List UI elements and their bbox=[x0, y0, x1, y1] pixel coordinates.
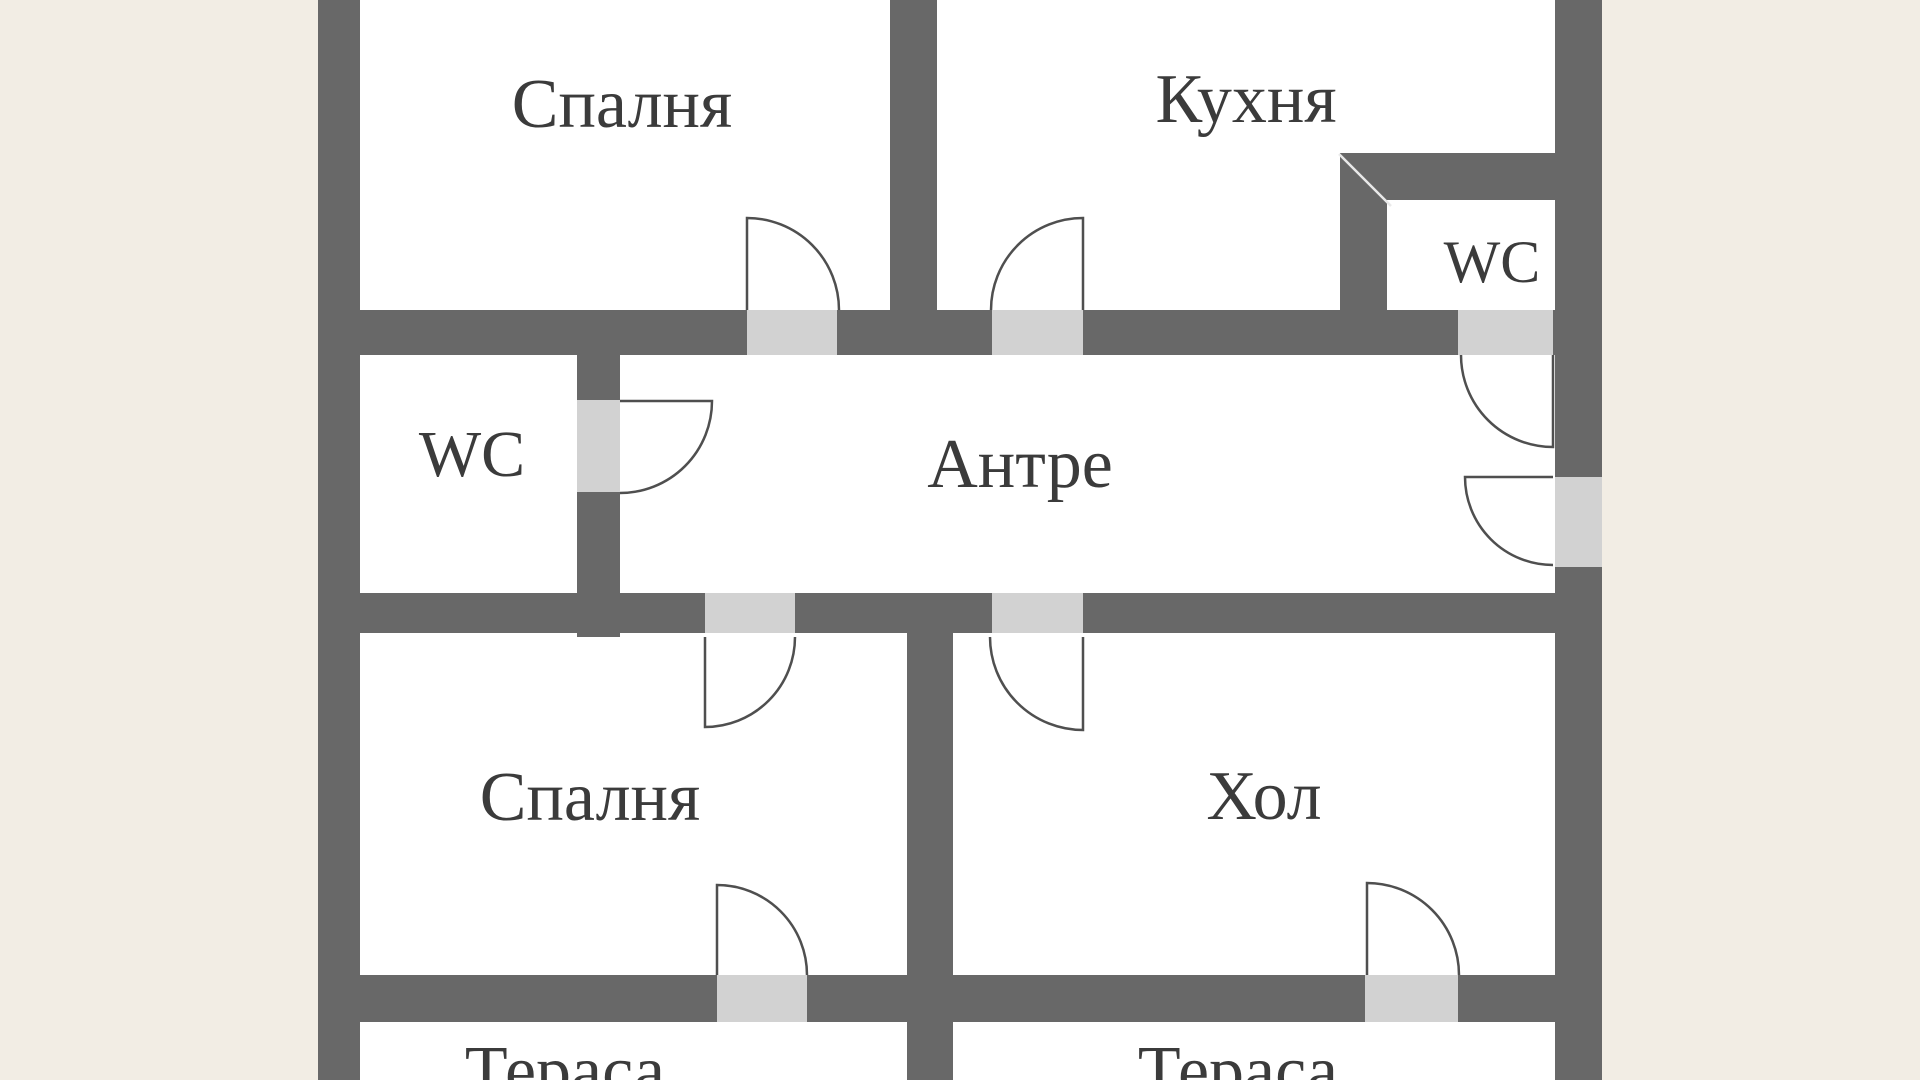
door-opening-bedroom-bottom bbox=[705, 593, 795, 633]
floor-plan-canvas: Спалня Кухня WC WC Антре Спалня Хол Тера… bbox=[0, 0, 1920, 1080]
door-opening-terrace-right bbox=[1365, 975, 1458, 1022]
room-label-terrace-right: Тераса bbox=[1138, 1037, 1338, 1080]
wall-hallway-top bbox=[360, 310, 1555, 355]
door-opening-terrace-left bbox=[717, 975, 807, 1022]
room-label-kitchen: Кухня bbox=[1155, 65, 1336, 135]
wall-outer-left bbox=[318, 0, 360, 1080]
door-opening-bedroom-top bbox=[747, 310, 837, 355]
room-label-bedroom-top: Спалня bbox=[512, 70, 732, 140]
wall-bedroom-kitchen-divider bbox=[890, 0, 937, 310]
room-label-wc-left: WC bbox=[419, 422, 525, 488]
wall-hallway-bottom bbox=[360, 593, 1602, 633]
room-label-bedroom-bottom: Спалня bbox=[480, 763, 700, 833]
door-opening-living-room bbox=[992, 593, 1083, 633]
room-label-terrace-left: Тераса bbox=[465, 1037, 665, 1080]
door-opening-wc-left bbox=[577, 400, 620, 492]
room-label-wc-right: WC bbox=[1444, 232, 1541, 292]
door-opening-entrance bbox=[1555, 477, 1602, 567]
room-label-hallway: Антре bbox=[927, 430, 1113, 500]
room-label-living-room: Хол bbox=[1206, 762, 1321, 832]
door-opening-wc-right bbox=[1458, 310, 1553, 355]
door-opening-kitchen bbox=[992, 310, 1083, 355]
wall-wc-right-stub bbox=[1340, 153, 1387, 310]
